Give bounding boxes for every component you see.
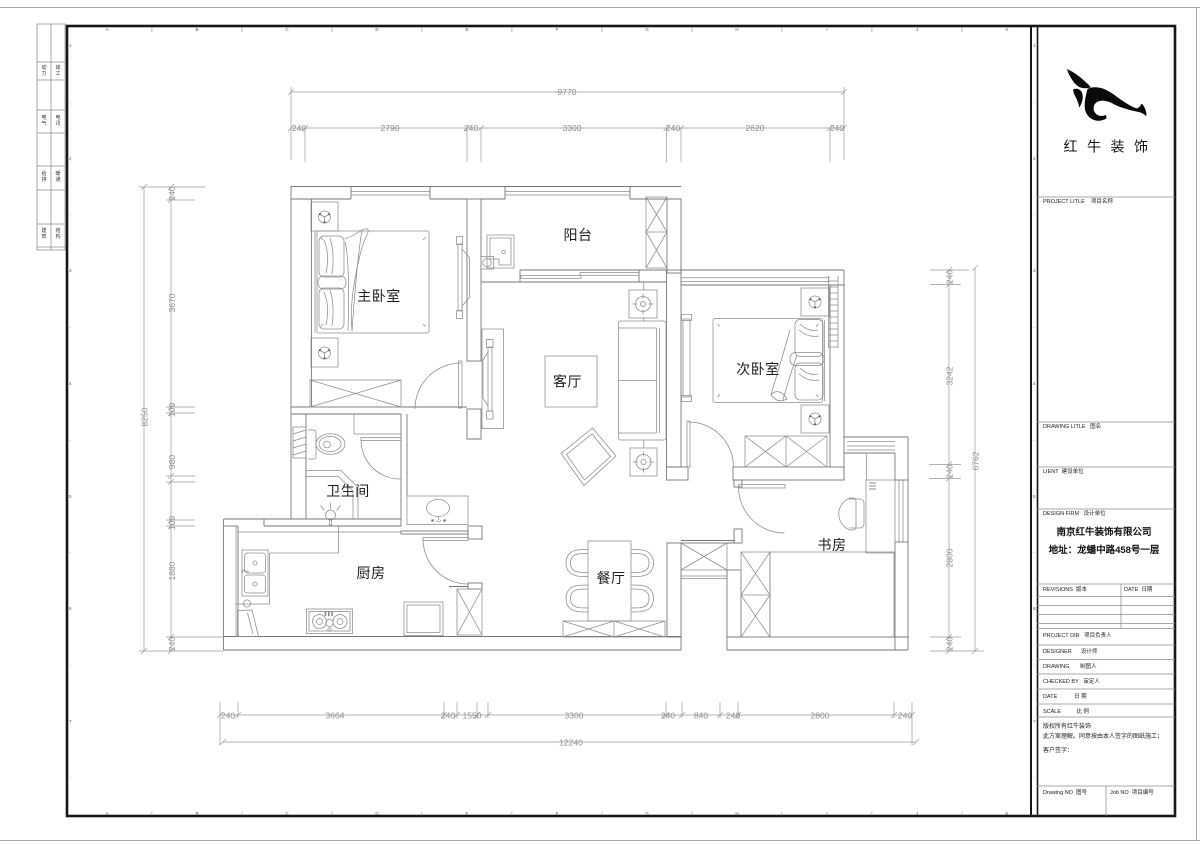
svg-text:给: 给 [41,170,46,177]
svg-text:1880: 1880 [167,561,177,580]
svg-text:4: 4 [1033,381,1036,386]
svg-text:G: G [645,811,649,816]
svg-text:I: I [826,27,827,32]
svg-text:E: E [465,27,468,32]
svg-text:12240: 12240 [559,738,583,748]
svg-text:D: D [375,27,379,32]
svg-text:1: 1 [1033,43,1036,48]
svg-text:A: A [105,27,108,32]
svg-text:2: 2 [69,156,72,161]
svg-text:240: 240 [661,711,675,721]
svg-text:-: - [1033,438,1035,443]
svg-text:DATE 日 期: DATE 日 期 [1043,693,1087,700]
svg-text:SCALE 比 例: SCALE 比 例 [1043,707,1089,715]
svg-text:I: I [826,811,827,816]
svg-text:-: - [69,325,71,330]
svg-text:9770: 9770 [558,87,577,97]
svg-text:5: 5 [69,494,72,499]
svg-text:-: - [69,775,71,780]
svg-text:|: | [421,811,422,816]
svg-text:240: 240 [167,637,177,651]
svg-text:地址：龙蟠中路458号一层: 地址：龙蟠中路458号一层 [1049,544,1160,556]
svg-text:4: 4 [69,381,72,386]
svg-text:|: | [511,811,512,816]
svg-text:2: 2 [1033,156,1036,161]
svg-text:-: - [1033,325,1035,330]
svg-text:PROJECT LITLE 项目名称: PROJECT LITLE 项目名称 [1043,197,1113,205]
svg-text:240: 240 [292,123,306,133]
svg-text:A: A [105,811,108,816]
svg-text:3670: 3670 [167,293,177,312]
svg-text:建: 建 [41,227,46,234]
svg-text:力: 力 [41,70,46,77]
svg-text:LIENT 建设单位: LIENT 建设单位 [1043,467,1084,475]
svg-text:|: | [961,811,962,816]
svg-text:3: 3 [1033,268,1036,273]
svg-text:|: | [871,811,872,816]
svg-text:H: H [735,811,738,816]
svg-text:240: 240 [945,270,955,284]
svg-text:F: F [556,27,559,32]
svg-text:|: | [331,811,332,816]
svg-text:H: H [735,27,738,32]
svg-text:暖: 暖 [55,170,60,177]
svg-text:DESIGNER 设计师: DESIGNER 设计师 [1043,647,1098,655]
svg-text:|: | [511,27,512,32]
svg-text:B: B [195,27,198,32]
svg-text:CHECKED BY 审定人: CHECKED BY 审定人 [1043,677,1100,685]
svg-text:K: K [1005,811,1008,816]
svg-text:6: 6 [69,606,72,611]
svg-text:240: 240 [464,123,478,133]
svg-text:筑: 筑 [41,233,46,240]
svg-text:6762: 6762 [971,451,981,470]
svg-text:240: 240 [726,711,740,721]
svg-text:卫生间: 卫生间 [326,484,370,500]
svg-text:|: | [781,27,782,32]
svg-text:次卧室: 次卧室 [736,361,780,378]
svg-text:F: F [556,811,559,816]
svg-text:-: - [69,550,71,555]
svg-text:|: | [871,27,872,32]
svg-text:240: 240 [441,711,455,721]
svg-text:|: | [691,811,692,816]
svg-text:|: | [151,27,152,32]
svg-text:结: 结 [55,227,60,234]
svg-text:840: 840 [694,711,708,721]
svg-text:-: - [1033,100,1035,105]
svg-text:1: 1 [69,43,72,48]
svg-text:3: 3 [69,268,72,273]
svg-text:3300: 3300 [565,711,584,721]
svg-text:-: - [69,100,71,105]
svg-text:动: 动 [41,64,46,71]
svg-text:通: 通 [55,176,60,183]
svg-text:|: | [601,811,602,816]
svg-text:|: | [241,27,242,32]
svg-text:-: - [69,663,71,668]
svg-text:南京红牛装饰有限公司: 南京红牛装饰有限公司 [1056,526,1151,538]
svg-text:DRAWING 制图人: DRAWING 制图人 [1043,662,1097,670]
svg-text:1550: 1550 [463,711,482,721]
svg-text:Drawing NO 图号: Drawing NO 图号 [1043,788,1088,796]
svg-text:2800: 2800 [811,711,830,721]
svg-text:工: 工 [55,71,60,77]
svg-text:100: 100 [167,516,177,530]
svg-text:7: 7 [1033,719,1036,724]
svg-text:电: 电 [41,114,46,121]
svg-text:-: - [1033,550,1035,555]
svg-text:厨房: 厨房 [357,566,386,582]
svg-text:|: | [691,27,692,32]
svg-text:240: 240 [945,637,955,651]
svg-text:240: 240 [221,711,235,721]
svg-text:竣: 竣 [55,64,60,71]
svg-text:客户签字：: 客户签字： [1043,746,1073,754]
svg-text:2620: 2620 [746,123,765,133]
svg-text:此方案理解。同意按由本人签字的图纸施工；: 此方案理解。同意按由本人签字的图纸施工； [1043,732,1163,740]
svg-text:|: | [241,811,242,816]
svg-text:240: 240 [167,186,177,200]
svg-text:客厅: 客厅 [553,374,582,391]
svg-text:|: | [421,27,422,32]
svg-text:-: - [1033,663,1035,668]
svg-text:100: 100 [167,403,177,417]
svg-text:C: C [285,27,289,32]
svg-text:版权所有红牛装饰: 版权所有红牛装饰 [1043,722,1091,730]
svg-text:-: - [1033,775,1035,780]
svg-text:主卧室: 主卧室 [357,288,401,305]
svg-text:REVISIONS 版本: REVISIONS 版本 [1043,585,1088,593]
svg-text:-: - [69,438,71,443]
svg-text:|: | [781,811,782,816]
svg-text:240: 240 [945,464,955,478]
svg-text:E: E [465,811,468,816]
svg-text:-: - [69,212,71,217]
svg-text:电: 电 [55,114,60,121]
svg-text:Job NO 项目编号: Job NO 项目编号 [1110,788,1154,796]
svg-text:DATE 日期: DATE 日期 [1124,586,1153,593]
svg-text:DRAWING LITLE 图名: DRAWING LITLE 图名 [1043,422,1101,430]
svg-text:2800: 2800 [945,548,955,567]
svg-text:|: | [601,27,602,32]
svg-text:红牛装饰: 红牛装饰 [1064,140,1158,156]
svg-text:-: - [1033,212,1035,217]
svg-text:240: 240 [666,123,680,133]
svg-text:|: | [331,27,332,32]
svg-text:5: 5 [1033,494,1036,499]
svg-text:K: K [1005,27,1008,32]
svg-text:|: | [961,27,962,32]
svg-text:PROJECT DIR 项目负责人: PROJECT DIR 项目负责人 [1043,631,1112,639]
svg-text:讯: 讯 [55,120,60,127]
svg-text:DESIGN FIRM 设计单位: DESIGN FIRM 设计单位 [1043,509,1106,517]
svg-text:7: 7 [69,719,72,724]
svg-text:3664: 3664 [326,711,345,721]
svg-text:8250: 8250 [140,407,150,426]
svg-text:|: | [151,811,152,816]
svg-text:980: 980 [167,455,177,469]
svg-text:240: 240 [898,711,912,721]
svg-text:气: 气 [41,120,46,127]
svg-text:3242: 3242 [945,366,955,385]
svg-text:240: 240 [830,123,844,133]
svg-text:阳台: 阳台 [564,228,593,244]
svg-text:G: G [645,27,649,32]
svg-text:B: B [195,811,198,816]
svg-text:3300: 3300 [563,123,582,133]
svg-text:2790: 2790 [381,123,400,133]
svg-text:构: 构 [55,233,60,240]
svg-text:餐厅: 餐厅 [597,571,626,587]
svg-text:排: 排 [41,176,46,183]
svg-text:书房: 书房 [818,538,847,554]
svg-text:6: 6 [1033,606,1036,611]
svg-text:J: J [916,27,918,32]
svg-text:J: J [916,811,918,816]
